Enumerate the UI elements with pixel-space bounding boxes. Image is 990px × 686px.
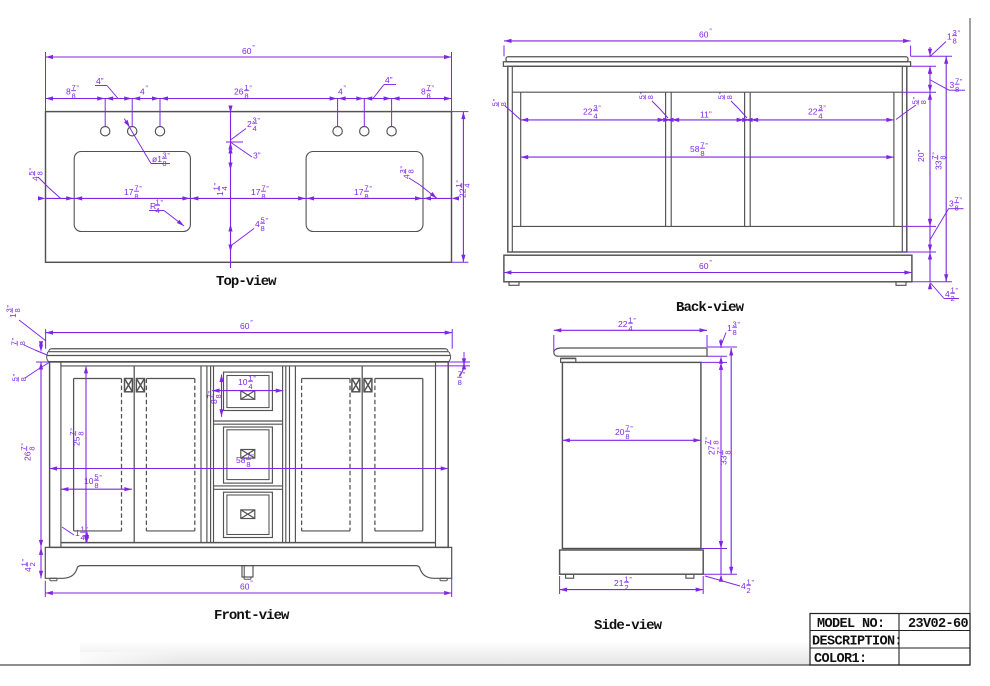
svg-text:Front-view: Front-view: [214, 608, 290, 624]
svg-text:8: 8: [18, 341, 27, 345]
svg-text:8: 8: [955, 203, 959, 212]
svg-text:8: 8: [261, 192, 265, 201]
svg-text:21: 21: [614, 578, 624, 588]
svg-text:8: 8: [700, 149, 704, 158]
svg-text:8: 8: [94, 481, 98, 490]
svg-text:MODEL NO:: MODEL NO:: [817, 617, 885, 632]
svg-text:17: 17: [354, 187, 364, 197]
svg-text:3: 3: [949, 199, 954, 209]
svg-text:4: 4: [220, 186, 229, 190]
svg-text:1: 1: [947, 32, 952, 42]
svg-text:ø1: ø1: [152, 154, 162, 164]
svg-text:8: 8: [27, 446, 36, 450]
svg-text:4: 4: [945, 289, 950, 299]
svg-text:8: 8: [72, 91, 76, 100]
svg-text:10: 10: [238, 377, 248, 387]
svg-text:4: 4: [741, 581, 746, 591]
svg-text:8: 8: [364, 192, 368, 201]
svg-text:17: 17: [124, 187, 134, 197]
svg-text:2: 2: [247, 119, 252, 129]
svg-text:20: 20: [615, 427, 625, 437]
svg-text:1: 1: [727, 323, 732, 333]
svg-text:8: 8: [953, 36, 957, 45]
svg-text:2: 2: [624, 583, 628, 592]
svg-text:8: 8: [625, 432, 629, 441]
svg-text:4: 4: [253, 124, 257, 133]
svg-text:22: 22: [583, 107, 593, 117]
svg-text:4: 4: [140, 87, 145, 97]
svg-text:60: 60: [240, 582, 250, 592]
svg-text:8: 8: [427, 91, 431, 100]
svg-text:8: 8: [76, 431, 85, 435]
svg-text:8: 8: [134, 192, 138, 201]
svg-text:26: 26: [23, 451, 33, 461]
svg-text:1: 1: [215, 191, 225, 196]
svg-text:4: 4: [255, 219, 260, 229]
svg-text:4: 4: [81, 533, 85, 542]
svg-text:20”: 20”: [916, 150, 926, 162]
svg-text:8: 8: [421, 87, 426, 97]
svg-text:Top-view: Top-view: [216, 274, 277, 290]
svg-text:8: 8: [13, 308, 22, 312]
svg-text:60: 60: [242, 46, 252, 56]
svg-text:8: 8: [66, 87, 71, 97]
svg-text:4: 4: [462, 183, 471, 187]
svg-text:4: 4: [338, 87, 343, 97]
svg-text:4: 4: [628, 324, 632, 333]
svg-text:8: 8: [499, 102, 508, 106]
svg-text:2: 2: [747, 586, 751, 595]
svg-text:COLOR1:: COLOR1:: [814, 652, 867, 667]
svg-text:8: 8: [938, 155, 947, 159]
svg-text:8: 8: [214, 394, 223, 398]
svg-text:58: 58: [690, 144, 700, 154]
svg-text:33: 33: [719, 455, 729, 465]
svg-text:8: 8: [919, 100, 928, 104]
svg-text:4: 4: [23, 567, 33, 572]
svg-text:60: 60: [240, 321, 250, 331]
svg-text:4: 4: [818, 111, 822, 120]
svg-text:10: 10: [84, 476, 94, 486]
svg-text:1: 1: [75, 528, 80, 538]
svg-text:17: 17: [251, 187, 261, 197]
svg-text:4”: 4”: [385, 75, 393, 85]
svg-text:8: 8: [733, 328, 737, 337]
svg-text:8: 8: [723, 450, 732, 454]
svg-text:3: 3: [950, 80, 955, 90]
svg-text:33: 33: [934, 160, 944, 170]
svg-text:23V02-60: 23V02-60: [908, 617, 969, 632]
svg-text:8: 8: [458, 378, 462, 387]
svg-text:60: 60: [699, 30, 709, 40]
svg-text:2: 2: [28, 562, 37, 566]
svg-text:25: 25: [72, 436, 82, 446]
svg-text:8: 8: [19, 377, 28, 381]
svg-text:4: 4: [248, 382, 252, 391]
svg-text:8: 8: [725, 95, 734, 99]
svg-text:1: 1: [8, 313, 18, 318]
svg-text:DESCRIPTION:: DESCRIPTION:: [812, 635, 902, 650]
svg-text:4”: 4”: [96, 76, 104, 86]
svg-text:8: 8: [209, 399, 219, 404]
svg-text:3”: 3”: [253, 151, 261, 161]
svg-text:8: 8: [406, 169, 415, 173]
svg-text:26: 26: [234, 87, 244, 97]
svg-text:58: 58: [236, 455, 246, 465]
svg-text:22: 22: [618, 319, 628, 329]
svg-text:4: 4: [593, 111, 597, 120]
svg-text:60: 60: [699, 261, 709, 271]
svg-text:8: 8: [244, 91, 248, 100]
svg-text:8: 8: [246, 460, 250, 469]
svg-text:Back-view: Back-view: [676, 300, 745, 316]
svg-text:8: 8: [261, 224, 265, 233]
svg-text:11”: 11”: [700, 110, 712, 120]
svg-text:8: 8: [955, 85, 959, 94]
svg-text:Side-view: Side-view: [594, 618, 663, 634]
svg-text:22: 22: [808, 107, 818, 117]
svg-text:8: 8: [646, 95, 655, 99]
svg-text:8: 8: [35, 171, 44, 175]
svg-text:8: 8: [711, 440, 720, 444]
